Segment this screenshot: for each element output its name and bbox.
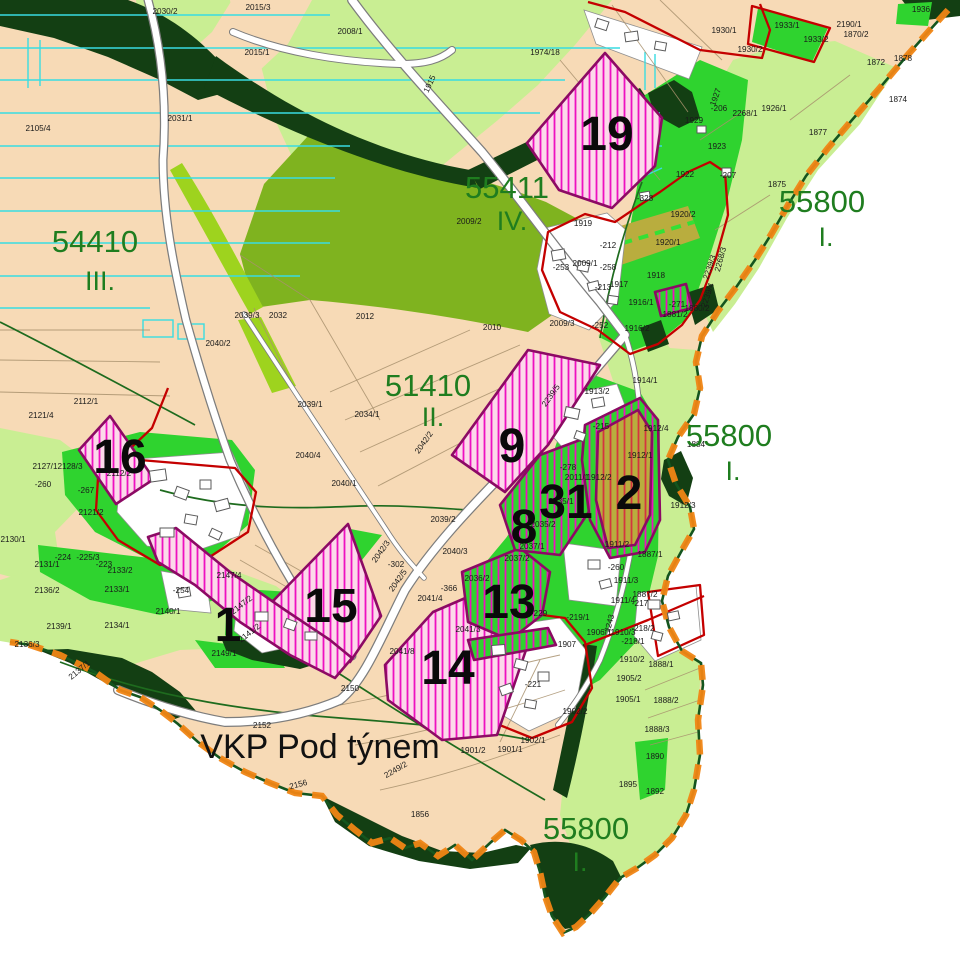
zone-code-label: 55800 (779, 184, 865, 219)
parcel-label: 2131/1 (34, 560, 59, 569)
parcel-label: 1856 (411, 810, 430, 819)
parcel-label: 2039/2 (430, 515, 455, 524)
parcel-label: 1917 (610, 280, 629, 289)
parcel-label: 2015/3 (245, 3, 270, 12)
zone-roman-label: I. (572, 847, 587, 877)
parcel-label: 1929 (685, 116, 704, 125)
site-number-1: 1 (215, 599, 242, 652)
parcel-label: -215 (593, 422, 610, 431)
parcel-label: 2032 (269, 311, 288, 320)
parcel-label: 1911/4 (611, 596, 636, 605)
parcel-label: 2009/2 (456, 217, 481, 226)
parcel-label: 2128/3 (57, 462, 82, 471)
zone-roman-label: III. (85, 266, 115, 296)
zone-roman-label: I. (818, 222, 833, 252)
parcel-label: 2150 (341, 684, 360, 693)
vkp-area-label: VKP Pod týnem (200, 728, 439, 766)
parcel-label: 1920/1 (655, 238, 680, 247)
parcel-label: 2121/2 (78, 508, 103, 517)
parcel-label: 1888/3 (644, 725, 669, 734)
parcel-label: -221 (525, 680, 542, 689)
parcel-label: -271 (669, 300, 686, 309)
parcel-label: -366 (441, 584, 458, 593)
site-number-2: 2 (616, 467, 643, 520)
parcel-label: 1912/4 (643, 424, 668, 433)
parcel-label: 1919 (574, 219, 593, 228)
parcel-label: 1901/1 (497, 745, 522, 754)
parcel-label: 2041/4 (417, 594, 442, 603)
parcel-label: 2136/2 (34, 586, 59, 595)
parcel-label: 1887/1 (637, 550, 662, 559)
parcel-label: 2121/4 (28, 411, 53, 420)
parcel-label: 1888/1 (648, 660, 673, 669)
parcel-label: 1926/1 (761, 104, 786, 113)
parcel-label: -252 (592, 321, 609, 330)
parcel-label: 1922 (676, 170, 695, 179)
zone-roman-label: I. (725, 456, 740, 486)
parcel-label: 1930/2 (737, 45, 762, 54)
parcel-label: -260 (35, 480, 52, 489)
parcel-label: 1902/2 (562, 707, 587, 716)
parcel-label: 2040/1 (331, 479, 356, 488)
parcel-label: 1936 (912, 5, 931, 14)
parcel-label: 2040/2 (205, 339, 230, 348)
parcel-label: 1911/2 (605, 540, 630, 549)
parcel-label: 2039/1 (297, 400, 322, 409)
parcel-label: 2268/1 (732, 109, 757, 118)
parcel-label: 1916/2 (624, 324, 649, 333)
parcel-label: 2010 (483, 323, 502, 332)
parcel-label: 1912/3 (670, 501, 695, 510)
parcel-label: 1878 (894, 54, 913, 63)
parcel-label: 2127/1 (32, 462, 57, 471)
parcel-label: 1933/1 (774, 21, 799, 30)
parcel-label: 2041/3 (455, 625, 480, 634)
parcel-label: 2034/1 (354, 410, 379, 419)
parcel-label: 1905/2 (616, 674, 641, 683)
parcel-label: 1902/1 (520, 736, 545, 745)
site-number-15: 15 (304, 580, 357, 633)
parcel-label: 1895 (619, 780, 638, 789)
parcel-label: 2139/1 (46, 622, 71, 631)
parcel-label: 1874 (889, 95, 908, 104)
parcel-label: 2040/3 (442, 547, 467, 556)
parcel-label: 2012 (356, 312, 375, 321)
zone-code-label: 55800 (686, 418, 772, 453)
cadastral-map-view: 2030/22015/32008/12015/11974/182105/4203… (0, 0, 960, 960)
parcel-label: 2039/3 (234, 311, 259, 320)
parcel-label: 1918 (647, 271, 666, 280)
parcel-label: 2134/1 (104, 621, 129, 630)
parcel-label: 1910/2 (619, 655, 644, 664)
parcel-label: 1974/18 (530, 48, 560, 57)
site-number-31: 31 (539, 476, 592, 529)
parcel-label: -253 (553, 263, 570, 272)
parcel-label: -302 (388, 560, 405, 569)
area-label: VKP Pod týnem (200, 728, 439, 766)
parcel-label: 1912/1 (627, 451, 652, 460)
zone-code-label: 51410 (385, 368, 471, 403)
parcel-label: 2140/1 (155, 607, 180, 616)
parcel-label: -218/1 (621, 637, 645, 646)
parcel-label: -260 (608, 563, 625, 572)
parcel-label: -328 (637, 194, 654, 203)
parcel-label: 2009/1 (572, 259, 597, 268)
parcel-label: 1870/2 (843, 30, 868, 39)
parcel-label: 1888/2 (653, 696, 678, 705)
zone-code-label: 55800 (543, 811, 629, 846)
parcel-label: 1877 (809, 128, 828, 137)
parcel-label: -218/2 (631, 624, 655, 633)
parcel-label: -258 (600, 263, 617, 272)
zone-roman-label: II. (422, 402, 445, 432)
parcel-label: -212 (600, 241, 617, 250)
site-number-13: 13 (482, 576, 535, 629)
parcel-label: 1911/3 (614, 576, 639, 585)
parcel-label: 2133/1 (104, 585, 129, 594)
site-number-8: 8 (511, 501, 538, 554)
parcel-label: 1892 (646, 787, 665, 796)
parcel-label: -219/1 (566, 613, 590, 622)
site-number-9: 9 (499, 420, 526, 473)
parcel-label: 1914/1 (632, 376, 657, 385)
parcel-label: 1913/2 (584, 387, 609, 396)
parcel-label: 1920/2 (670, 210, 695, 219)
parcel-label: 1905/1 (615, 695, 640, 704)
parcel-label: 2031/1 (167, 114, 192, 123)
parcel-label: -278 (560, 463, 577, 472)
parcel-label: 1923 (708, 142, 727, 151)
parcel-label: 1890 (646, 752, 665, 761)
parcel-label: 2112/1 (74, 397, 99, 406)
parcel-label: -267 (78, 486, 95, 495)
parcel-label: 1872 (867, 58, 886, 67)
parcel-label: 1907 (558, 640, 577, 649)
zone-code-label: 54410 (52, 224, 138, 259)
parcel-label: 2136/3 (14, 640, 39, 649)
parcel-label: 1887/2 (632, 590, 657, 599)
parcel-label: 2030/2 (152, 7, 177, 16)
site-number-16: 16 (93, 431, 146, 484)
map-canvas[interactable]: 2030/22015/32008/12015/11974/182105/4203… (0, 0, 960, 960)
parcel-label: -207 (720, 171, 737, 180)
site-number-14: 14 (421, 642, 475, 695)
parcel-label: 1930/1 (711, 26, 736, 35)
parcel-label: -213 (595, 283, 612, 292)
parcel-label: 2130/1 (0, 535, 25, 544)
parcel-label: 2015/1 (244, 48, 269, 57)
parcel-label: 2008/1 (337, 27, 362, 36)
parcel-label: -254 (173, 586, 190, 595)
parcel-label: 1901/2 (460, 746, 485, 755)
parcel-label: 1916/1 (628, 298, 653, 307)
parcel-label: 2037/2 (504, 554, 529, 563)
parcel-label: 2009/3 (549, 319, 574, 328)
zone-roman-label: IV. (497, 206, 528, 236)
parcel-label: 2147/4 (216, 571, 241, 580)
zone-code-label: 55411 (465, 170, 549, 205)
parcel-label: 2190/1 (836, 20, 861, 29)
parcel-label: 2133/2 (107, 566, 132, 575)
parcel-label: 2105/4 (25, 124, 50, 133)
parcel-label: 2041/8 (389, 647, 414, 656)
parcel-label: 1933/2 (803, 35, 828, 44)
parcel-label: 2040/4 (295, 451, 320, 460)
site-number-19: 19 (580, 108, 633, 161)
